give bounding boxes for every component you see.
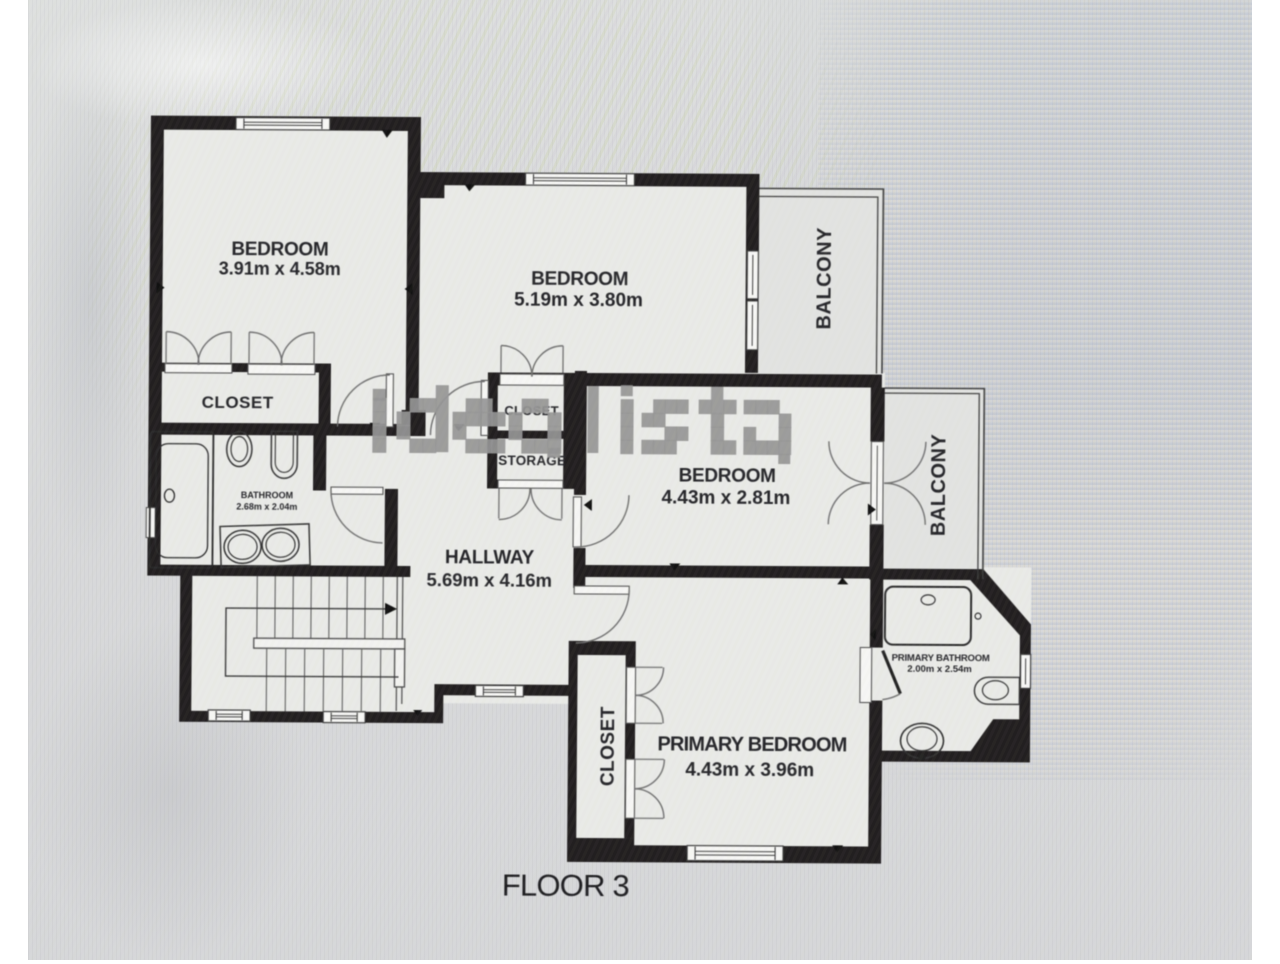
svg-text:BEDROOM: BEDROOM	[678, 465, 775, 487]
svg-text:CLOSET: CLOSET	[202, 393, 274, 412]
svg-text:4.43m x 3.96m: 4.43m x 3.96m	[685, 760, 814, 782]
svg-text:FLOOR 3: FLOOR 3	[502, 868, 629, 904]
svg-text:BALCONY: BALCONY	[928, 434, 951, 537]
svg-text:BEDROOM: BEDROOM	[531, 269, 628, 291]
svg-text:PRIMARY BEDROOM: PRIMARY BEDROOM	[657, 733, 846, 756]
svg-text:CLOSET: CLOSET	[598, 706, 620, 786]
svg-text:PRIMARY BATHROOM: PRIMARY BATHROOM	[892, 653, 990, 665]
svg-text:HALLWAY: HALLWAY	[445, 547, 535, 568]
svg-text:2.68m x 2.04m: 2.68m x 2.04m	[236, 502, 297, 512]
svg-text:3.91m x 4.58m: 3.91m x 4.58m	[219, 258, 341, 279]
svg-text:4.43m x 2.81m: 4.43m x 2.81m	[661, 487, 790, 509]
svg-text:BATHROOM: BATHROOM	[241, 490, 293, 500]
svg-text:5.19m x 3.80m: 5.19m x 3.80m	[514, 290, 643, 312]
svg-text:BALCONY: BALCONY	[813, 227, 836, 330]
svg-text:5.69m x 4.16m: 5.69m x 4.16m	[426, 569, 552, 591]
svg-text:2.00m x 2.54m: 2.00m x 2.54m	[907, 664, 972, 675]
svg-text:BEDROOM: BEDROOM	[231, 239, 328, 261]
